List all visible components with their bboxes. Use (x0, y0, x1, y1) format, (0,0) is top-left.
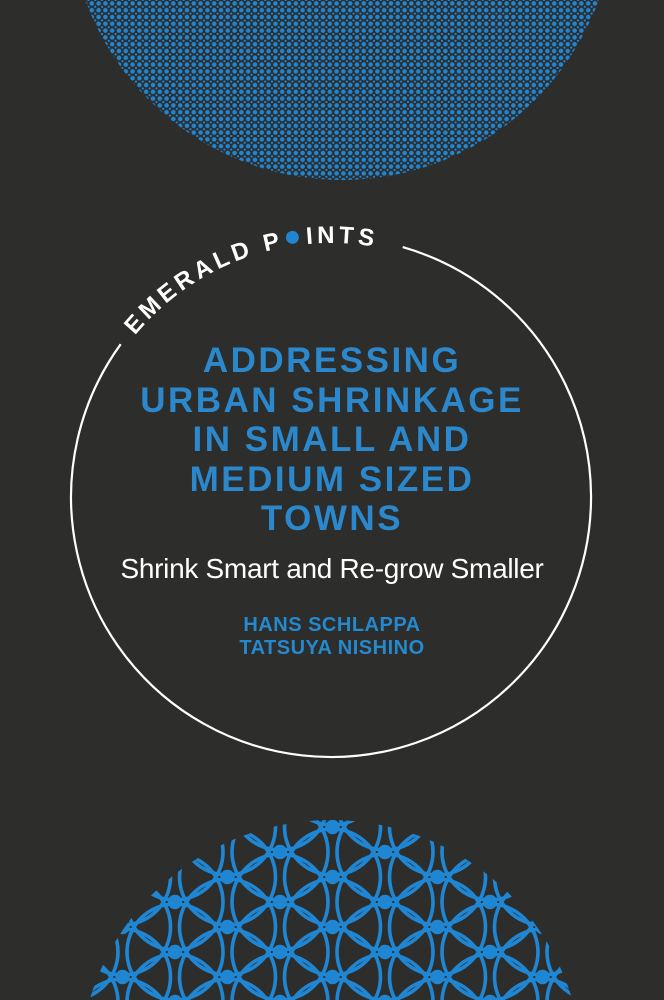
book-title-line: URBAN SHRINKAGE (0, 381, 664, 421)
series-brand-text: EMERALD P●INTS (119, 218, 380, 339)
book-subtitle: Shrink Smart and Re-grow Smaller (0, 552, 664, 586)
bottom-rings-circle (79, 820, 583, 1000)
author-name: TATSUYA NISHINO (0, 637, 664, 660)
book-title-line: TOWNS (0, 499, 664, 539)
top-halftone-circle (69, 0, 615, 180)
author-names: HANS SCHLAPPA TATSUYA NISHINO (0, 614, 664, 659)
author-name: HANS SCHLAPPA (0, 614, 664, 637)
series-brand-part2: INTS (305, 222, 380, 253)
book-title-line: MEDIUM SIZED (0, 460, 664, 500)
book-title: ADDRESSING URBAN SHRINKAGE IN SMALL AND … (0, 341, 664, 539)
book-cover: EMERALD P●INTS ADDRESSING URBAN SHRINKAG… (0, 0, 664, 1000)
book-title-line: ADDRESSING (0, 341, 664, 381)
series-brand-part1: EMERALD P (119, 227, 286, 340)
book-title-line: IN SMALL AND (0, 420, 664, 460)
series-brand-dot-icon: ● (281, 218, 308, 254)
